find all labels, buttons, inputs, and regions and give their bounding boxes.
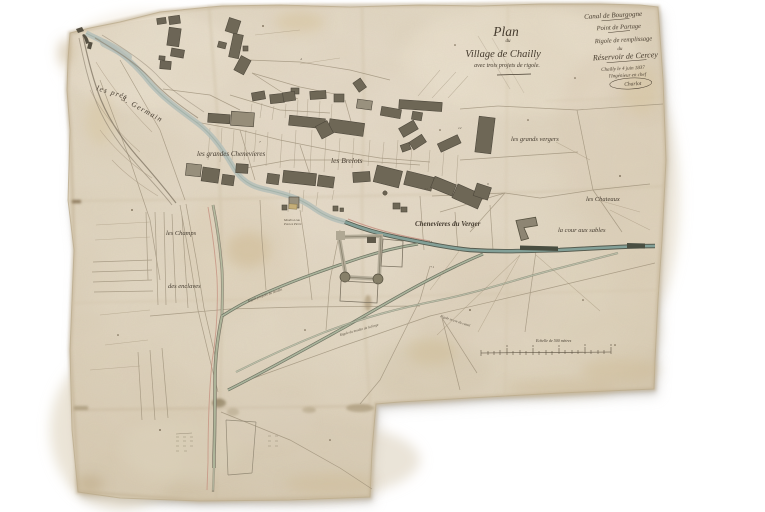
svg-text:9: 9 xyxy=(487,182,489,186)
svg-text:du: du xyxy=(506,39,512,44)
svg-text:les Champs: les Champs xyxy=(166,230,197,237)
svg-text:les Chateaux: les Chateaux xyxy=(586,196,620,203)
svg-text:+3: +3 xyxy=(428,240,432,244)
svg-text:12: 12 xyxy=(458,126,462,130)
svg-text:des enclaves: des enclaves xyxy=(168,283,201,290)
svg-text:Charlot: Charlot xyxy=(624,81,642,88)
svg-text:avec trois projets de rigole.: avec trois projets de rigole. xyxy=(474,63,540,69)
svg-text:Chenevieres du Verger: Chenevieres du Verger xyxy=(415,220,481,228)
svg-text:Echelle de 500 mètres: Echelle de 500 mètres xyxy=(535,338,572,343)
svg-text:4: 4 xyxy=(300,57,302,61)
svg-text:les grandes Chenevieres: les grandes Chenevieres xyxy=(197,150,265,158)
svg-text:la cour aux sables: la cour aux sables xyxy=(558,227,606,234)
svg-text:+2: +2 xyxy=(424,187,428,191)
svg-text:Pont en Pierre: Pont en Pierre xyxy=(283,222,302,226)
svg-text:Plan: Plan xyxy=(492,24,519,39)
svg-text:les Brelots: les Brelots xyxy=(331,156,363,165)
svg-text:Village de Chailly: Village de Chailly xyxy=(465,49,541,60)
svg-text:7: 7 xyxy=(259,140,261,144)
svg-text:les grands vergers: les grands vergers xyxy=(511,136,559,143)
svg-text:+1: +1 xyxy=(430,265,434,269)
